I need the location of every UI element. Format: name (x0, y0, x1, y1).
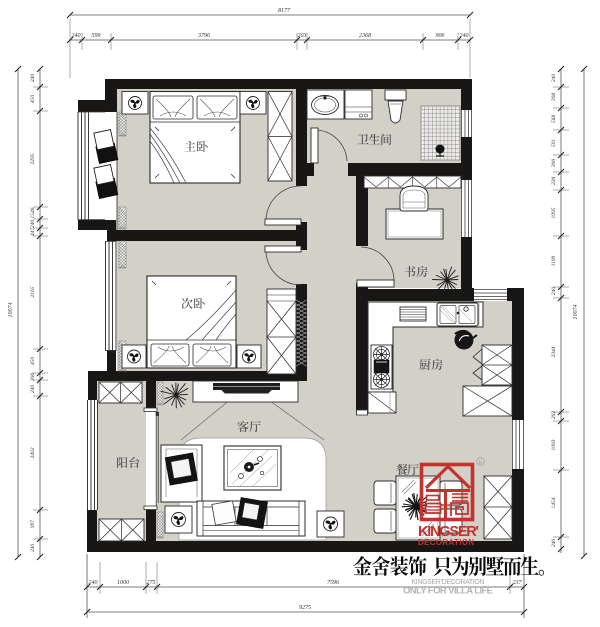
svg-text:1000: 1000 (117, 580, 129, 586)
svg-text:2344: 2344 (550, 346, 557, 357)
svg-text:568: 568 (551, 115, 557, 124)
svg-text:240: 240 (29, 544, 36, 553)
svg-text:240: 240 (460, 32, 469, 39)
svg-text:240: 240 (89, 579, 98, 586)
svg-text:240: 240 (29, 74, 36, 83)
svg-text:1546: 1546 (29, 207, 36, 218)
svg-text:308: 308 (551, 93, 557, 103)
svg-text:306: 306 (30, 373, 36, 383)
svg-text:447: 447 (29, 228, 36, 237)
svg-text:8177: 8177 (278, 8, 291, 14)
svg-text:202: 202 (551, 411, 557, 420)
svg-text:240: 240 (29, 385, 36, 394)
svg-text:1199: 1199 (551, 255, 557, 266)
svg-text:2368: 2368 (359, 33, 371, 39)
svg-text:ONLY FOR VILLA LIFE: ONLY FOR VILLA LIFE (403, 586, 493, 597)
svg-text:450: 450 (29, 95, 36, 104)
svg-text:7596: 7596 (327, 580, 339, 586)
svg-text:906: 906 (436, 33, 445, 39)
svg-text:501: 501 (551, 139, 557, 148)
svg-text:203: 203 (298, 33, 307, 39)
svg-text:DECORATION: DECORATION (418, 538, 474, 547)
svg-text:3796: 3796 (197, 33, 210, 39)
svg-text:2295: 2295 (30, 153, 36, 164)
svg-text:2165: 2165 (30, 286, 36, 297)
svg-text:240: 240 (550, 539, 557, 548)
svg-text:450: 450 (29, 357, 36, 366)
svg-text:275: 275 (147, 580, 156, 586)
svg-text:228: 228 (551, 177, 557, 186)
svg-text:1454: 1454 (550, 497, 557, 508)
svg-text:599: 599 (92, 33, 101, 39)
svg-text:300: 300 (551, 159, 557, 169)
svg-text:240: 240 (550, 74, 557, 83)
svg-text:R: R (479, 460, 483, 466)
svg-text:9275: 9275 (299, 605, 311, 611)
svg-text:240: 240 (550, 287, 557, 296)
svg-text:240: 240 (29, 220, 36, 229)
svg-text:1093: 1093 (551, 439, 557, 450)
svg-text:1995: 1995 (551, 207, 557, 218)
svg-text:240: 240 (72, 32, 81, 39)
svg-text:10074: 10074 (572, 305, 579, 320)
svg-text:237: 237 (513, 580, 523, 586)
svg-text:10074: 10074 (7, 303, 14, 318)
svg-text:2402: 2402 (29, 447, 36, 458)
svg-text:997: 997 (30, 520, 36, 529)
